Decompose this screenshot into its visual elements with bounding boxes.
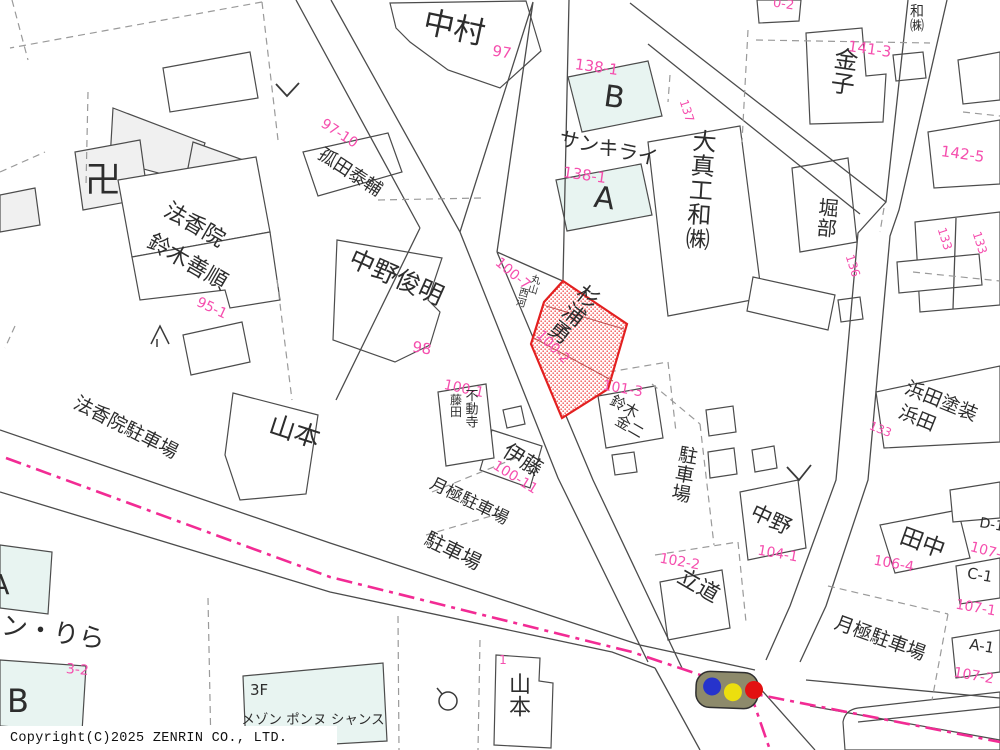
- hill-symbol: [151, 326, 169, 347]
- map-canvas[interactable]: 中村 97 B 138-1 サンキライ A 138-1 137 大真工和㈱ 金子…: [0, 0, 1000, 750]
- label-1: 1: [499, 653, 507, 667]
- label-n-rira: ン・りら: [0, 611, 107, 655]
- label-nishikawa: 西河: [515, 287, 530, 310]
- label-a-left: A: [0, 568, 10, 601]
- check-symbol: [276, 83, 299, 96]
- building: [893, 52, 926, 81]
- label-yamamoto-bottom: 山本: [509, 673, 531, 720]
- building: [706, 406, 736, 436]
- label-hokoin-parking: 法香院駐車場: [70, 392, 182, 463]
- traffic-light-icon: [695, 671, 763, 709]
- copyright-text: Copyright(C)2025 ZENRIN CO., LTD.: [10, 731, 287, 746]
- label-parking-right: 駐車場: [670, 444, 699, 507]
- label-tsukigime-parking-1: 月極駐車場: [427, 474, 512, 529]
- building: [752, 446, 777, 472]
- label-107-1: 107-1: [954, 597, 997, 620]
- building: [747, 277, 835, 330]
- building: [0, 188, 40, 232]
- label-fudoji: 不動寺: [465, 389, 478, 431]
- building: [950, 482, 1000, 522]
- building: [163, 52, 258, 112]
- temple-icon: 卍: [85, 160, 121, 201]
- label-horibe: 堀部: [816, 195, 840, 241]
- map-viewport: 中村 97 B 138-1 サンキライ A 138-1 137 大真工和㈱ 金子…: [0, 0, 1000, 750]
- label-parking-1: 駐車場: [421, 527, 485, 575]
- label-3-2: 3-2: [65, 661, 89, 679]
- label-136: 136: [843, 253, 863, 279]
- building: [503, 406, 525, 428]
- label-97: 97: [491, 42, 513, 63]
- label-wa-kabu: 和㈱: [910, 4, 924, 34]
- building: [708, 448, 737, 478]
- check-symbol: [787, 465, 811, 480]
- label-95-1: 95-1: [194, 294, 230, 322]
- label-d-1: D-1: [978, 515, 1000, 535]
- label-98: 98: [411, 338, 433, 359]
- building: [612, 452, 637, 475]
- label-tsukigime-parking-2: 月極駐車場: [832, 612, 929, 665]
- label-3f: 3F: [250, 681, 268, 699]
- label-fujita: 藤田: [450, 393, 462, 419]
- copyright-bar: Copyright(C)2025 ZENRIN CO., LTD.: [0, 726, 337, 750]
- well-symbol: [439, 692, 457, 710]
- building: [958, 52, 1000, 104]
- well-symbol-tick: [437, 688, 442, 694]
- building: [183, 322, 250, 375]
- label-b-left: B: [7, 682, 29, 720]
- label-137: 137: [677, 98, 697, 124]
- label-maruyama: 丸山: [527, 272, 543, 297]
